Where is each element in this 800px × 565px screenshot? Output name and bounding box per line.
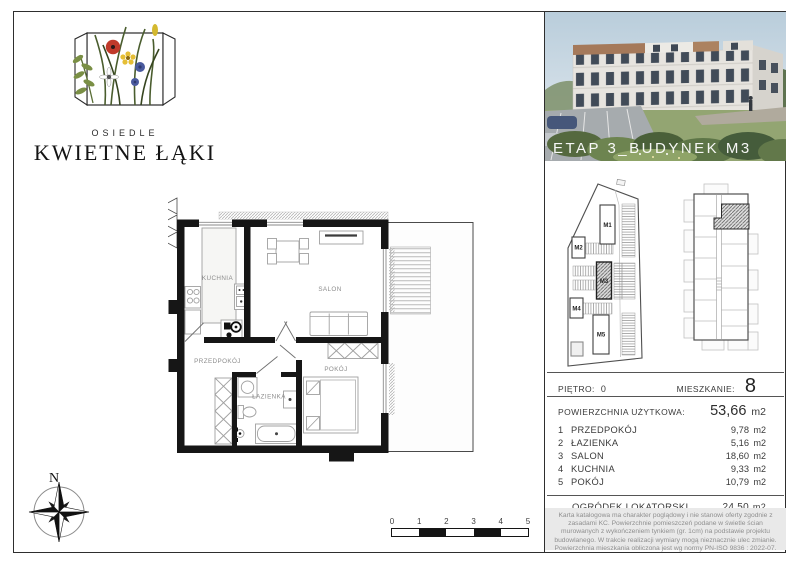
sofa — [310, 312, 368, 336]
compass-main-star — [29, 482, 89, 542]
apartment-number: 8 — [745, 378, 756, 394]
chair — [300, 254, 309, 265]
car-blue — [547, 116, 577, 129]
photo-caption: ETAP 3_BUDYNEK M3 — [553, 140, 752, 157]
dining-table — [276, 241, 299, 262]
building-gable — [753, 45, 783, 114]
logo-subtitle: OSIEDLE — [10, 128, 240, 138]
person — [749, 100, 752, 111]
tv-cabinet — [320, 231, 364, 244]
awning-marks — [168, 198, 177, 248]
floor-label: PIĘTRO: — [558, 384, 595, 394]
room-list: 1 PRZEDPOKÓJ 9,78 m2 2 ŁAZIENKA 5,16 m2 … — [545, 420, 786, 489]
scale-tick: 0 — [388, 517, 396, 526]
building-floor-overview — [676, 178, 784, 368]
scale-tick: 5 — [524, 517, 532, 526]
room-area: 10,79 — [711, 476, 749, 489]
room-number: 2 — [558, 437, 571, 450]
room-label-lazienka: ŁAZIENKA — [252, 394, 286, 401]
site-label-m5: M5 — [597, 333, 606, 339]
room-area: 9,33 — [711, 463, 749, 476]
site-label-m4: M4 — [572, 307, 581, 313]
yellow-bud — [152, 24, 158, 36]
scale-tick: 2 — [442, 517, 450, 526]
estate-name: KWIETNE ŁĄKI — [10, 140, 240, 166]
room-row: 3 SALON 18,60 m2 — [558, 450, 766, 463]
toilet — [243, 407, 256, 417]
chair — [300, 239, 309, 250]
legal-disclaimer: Karta katalogowa ma charakter poglądowy … — [545, 508, 786, 550]
room-row: 5 POKÓJ 10,79 m2 — [558, 476, 766, 489]
scale-bar: 0 1 2 3 4 5 — [388, 517, 532, 537]
room-unit: m2 — [749, 476, 766, 489]
scale-ticks: 0 1 2 3 4 5 — [388, 517, 532, 528]
room-area: 9,78 — [711, 424, 749, 437]
area-label: POWIERZCHNIA UŻYTKOWA: — [558, 407, 685, 417]
room-label-pokoj: POKÓJ — [324, 364, 347, 373]
room-area: 5,16 — [711, 437, 749, 450]
room-label-przedpokoj: PRZEDPOKÓJ — [194, 356, 241, 365]
floor-value: 0 — [601, 384, 606, 394]
apartment-label: MIESZKANIE: — [677, 384, 735, 394]
room-unit: m2 — [749, 424, 766, 437]
room-name: ŁAZIENKA — [571, 437, 711, 450]
area-unit: m2 — [751, 406, 766, 418]
room-number: 3 — [558, 450, 571, 463]
estate-logo: OSIEDLE KWIETNE ŁĄKI — [10, 24, 240, 166]
scale-tick: 4 — [497, 517, 505, 526]
floor-field: PIĘTRO: 0 — [558, 384, 606, 394]
site-label-m3: M3 — [600, 279, 609, 285]
hall-wardrobe — [215, 378, 232, 444]
site-label-m1: M1 — [603, 223, 612, 229]
site-label-m2: M2 — [574, 246, 583, 252]
utility-building — [571, 342, 583, 356]
compass-rose: N — [22, 460, 102, 550]
area-value: 53,66 — [710, 403, 746, 419]
floor-apartment-row: PIĘTRO: 0 MIESZKANIE: 8 — [545, 373, 786, 396]
chair — [268, 254, 277, 265]
chair — [268, 239, 277, 250]
exterior-hatch — [219, 212, 388, 220]
room-name: SALON — [571, 450, 711, 463]
scale-tick: 3 — [470, 517, 478, 526]
apartment-info: PIĘTRO: 0 MIESZKANIE: 8 POWIERZCHNIA UŻY… — [545, 372, 786, 513]
catalog-page: OSIEDLE KWIETNE ŁĄKI — [0, 0, 800, 565]
room-number: 5 — [558, 476, 571, 489]
kitchen-cabinet — [185, 310, 201, 334]
room-name: POKÓJ — [571, 476, 711, 489]
room-row: 1 PRZEDPOKÓJ 9,78 m2 — [558, 424, 766, 437]
building-photo: ETAP 3_BUDYNEK M3 — [545, 12, 786, 161]
room-name: PRZEDPOKÓJ — [571, 424, 711, 437]
furniture — [185, 228, 378, 444]
room-label-kuchnia: KUCHNIA — [202, 275, 234, 282]
room-name: KUCHNIA — [571, 463, 711, 476]
building-facade — [573, 40, 753, 116]
room-area: 18,60 — [711, 450, 749, 463]
room-number: 4 — [558, 463, 571, 476]
room-label-salon: SALON — [318, 286, 341, 293]
room-unit: m2 — [749, 450, 766, 463]
yellow-flower — [120, 51, 135, 64]
room-unit: m2 — [749, 463, 766, 476]
apartment-floor-plan: KUCHNIA SALON PRZEDPOKÓJ POKÓJ ŁAZIENKA — [168, 193, 478, 478]
room-unit: m2 — [749, 437, 766, 450]
room-number: 1 — [558, 424, 571, 437]
scale-strip — [391, 528, 529, 537]
site-plan: M1 M2 M3 M4 M5 — [548, 171, 674, 373]
tenant-garden — [388, 223, 473, 452]
grass-blades — [95, 27, 159, 105]
room-row: 2 ŁAZIENKA 5,16 m2 — [558, 437, 766, 450]
usable-area-row: POWIERZCHNIA UŻYTKOWA: 53,66 m2 — [545, 397, 786, 420]
north-label: N — [49, 471, 59, 486]
apartment-field: MIESZKANIE: 8 — [677, 378, 756, 394]
terrace-deck — [391, 247, 431, 314]
room-row: 4 KUCHNIA 9,33 m2 — [558, 463, 766, 476]
scale-tick: 1 — [415, 517, 423, 526]
window-flowers-illustration — [65, 24, 185, 121]
